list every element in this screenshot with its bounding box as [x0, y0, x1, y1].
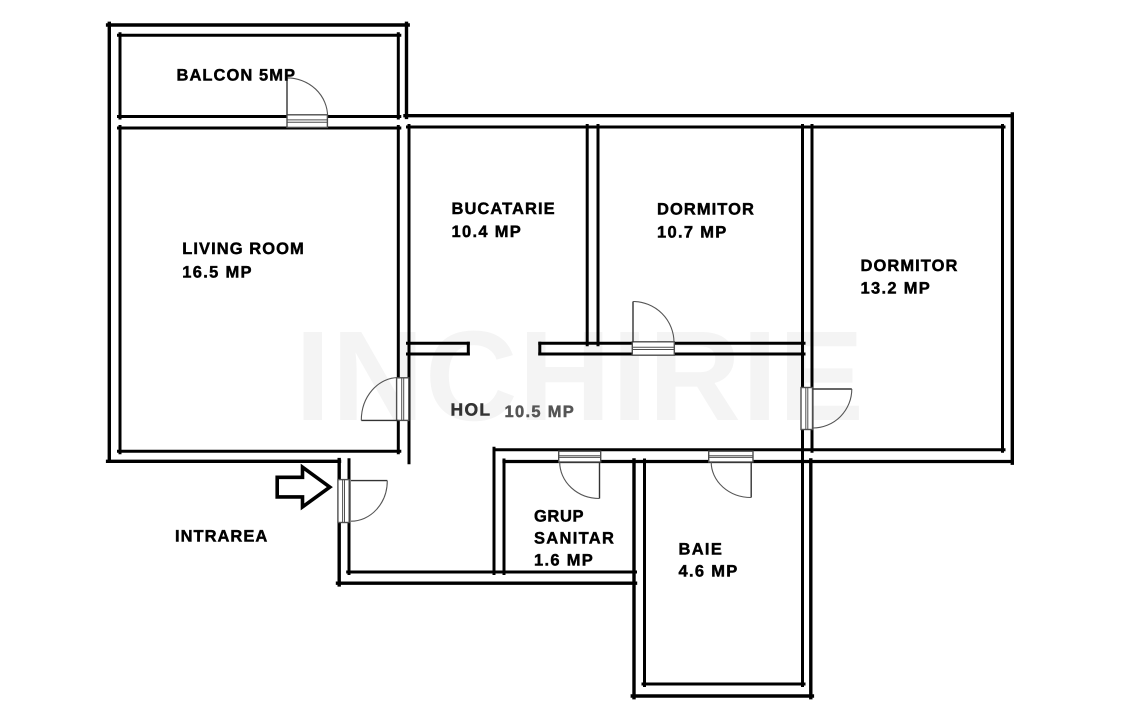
svg-text:INCHIRIE: INCHIRIE [295, 305, 865, 448]
svg-text:INTRAREA: INTRAREA [175, 527, 268, 545]
svg-text:13.2 MP: 13.2 MP [861, 279, 932, 297]
svg-text:GRUP: GRUP [534, 508, 584, 526]
svg-text:10.4 MP: 10.4 MP [452, 223, 523, 241]
svg-text:10.5 MP: 10.5 MP [505, 403, 576, 421]
svg-text:4.6 MP: 4.6 MP [679, 563, 739, 581]
svg-text:16.5 MP: 16.5 MP [182, 263, 253, 281]
svg-text:DORMITOR: DORMITOR [861, 257, 959, 275]
svg-text:LIVING ROOM: LIVING ROOM [182, 240, 304, 258]
svg-text:DORMITOR: DORMITOR [657, 200, 755, 218]
svg-text:10.7 MP: 10.7 MP [657, 223, 728, 241]
svg-text:1.6 MP: 1.6 MP [534, 552, 594, 570]
svg-text:BALCON 5MP: BALCON 5MP [177, 66, 297, 84]
svg-text:SANITAR: SANITAR [534, 530, 615, 548]
svg-text:BAIE: BAIE [679, 541, 724, 559]
svg-text:HOL: HOL [451, 399, 492, 419]
svg-text:BUCATARIE: BUCATARIE [452, 200, 556, 218]
